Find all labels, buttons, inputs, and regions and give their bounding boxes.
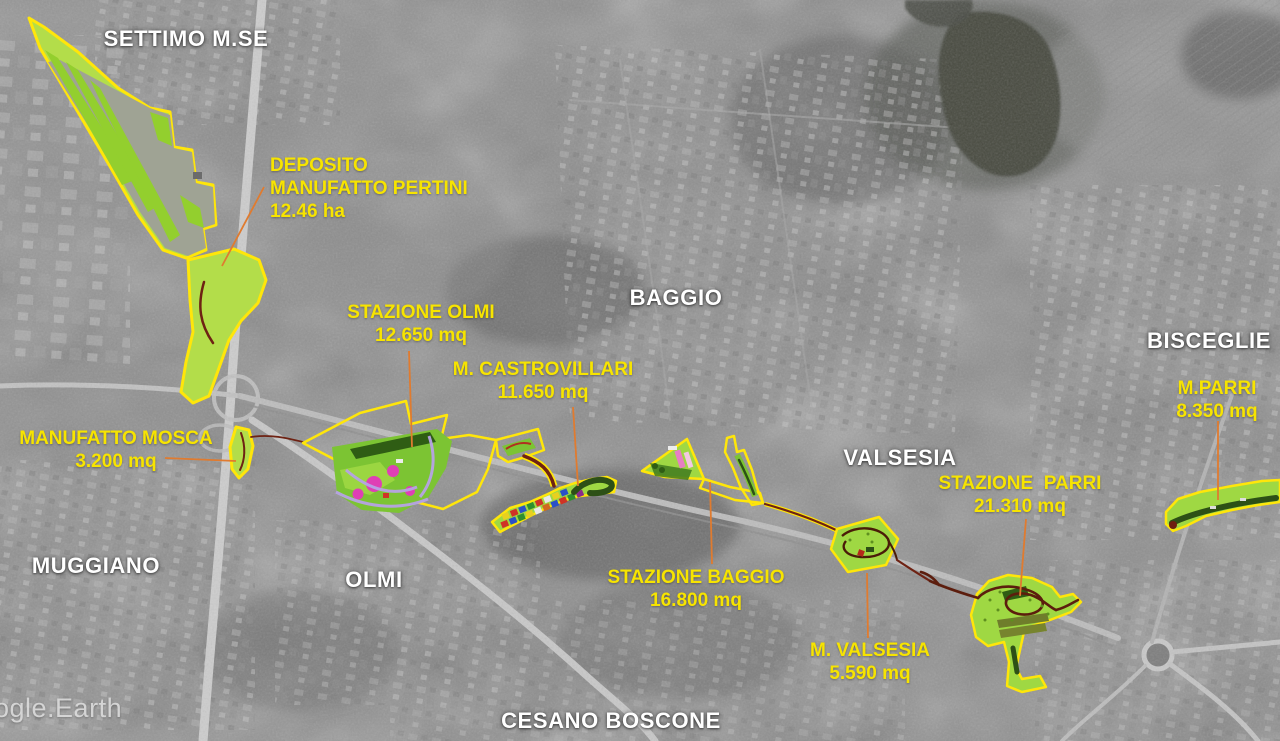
site-label-deposito-pertini: DEPOSITO MANUFATTO PERTINI 12.46 ha <box>270 154 468 223</box>
site-name: DEPOSITO <box>270 154 468 177</box>
site-area: 11.650 mq <box>453 381 634 404</box>
site-label-mparri: M.PARRI 8.350 mq <box>1176 377 1257 423</box>
site-name: STAZIONE BAGGIO <box>608 566 785 589</box>
site-name: STAZIONE PARRI <box>939 472 1102 495</box>
site-label-stazione-olmi: STAZIONE OLMI 12.650 mq <box>347 301 494 347</box>
site-label-stazione-parri: STAZIONE PARRI 21.310 mq <box>939 472 1102 518</box>
site-name: M. VALSESIA <box>810 639 930 662</box>
satellite-map: SETTIMO M.SE BAGGIO BISCEGLIE VALSESIA M… <box>0 0 1280 741</box>
site-area: 5.590 mq <box>810 662 930 685</box>
site-name: MANUFATTO PERTINI <box>270 177 468 200</box>
google-earth-watermark: ogle.Earth <box>0 693 122 724</box>
region-label-baggio: BAGGIO <box>630 285 723 311</box>
site-name: MANUFATTO MOSCA <box>19 427 213 450</box>
site-name: M.PARRI <box>1176 377 1257 400</box>
site-name: STAZIONE OLMI <box>347 301 494 324</box>
site-area: 21.310 mq <box>939 495 1102 518</box>
site-label-castrovillari: M. CASTROVILLARI 11.650 mq <box>453 358 634 404</box>
site-area: 12.46 ha <box>270 200 468 223</box>
site-label-stazione-baggio: STAZIONE BAGGIO 16.800 mq <box>608 566 785 612</box>
region-label-muggiano: MUGGIANO <box>32 553 160 579</box>
site-area: 12.650 mq <box>347 324 494 347</box>
region-label-valsesia: VALSESIA <box>843 445 956 471</box>
region-label-cesano-boscone: CESANO BOSCONE <box>501 708 721 734</box>
region-label-olmi: OLMI <box>345 567 402 593</box>
region-label-bisceglie: BISCEGLIE <box>1147 328 1271 354</box>
leader-line-valsesia <box>867 573 868 638</box>
site-label-valsesia: M. VALSESIA 5.590 mq <box>810 639 930 685</box>
site-label-manufatto-mosca: MANUFATTO MOSCA 3.200 mq <box>19 427 213 473</box>
site-area: 16.800 mq <box>608 589 785 612</box>
site-area: 8.350 mq <box>1176 400 1257 423</box>
site-name: M. CASTROVILLARI <box>453 358 634 381</box>
region-label-settimo-mse: SETTIMO M.SE <box>104 26 269 52</box>
map-canvas <box>0 0 1280 741</box>
site-area: 3.200 mq <box>19 450 213 473</box>
